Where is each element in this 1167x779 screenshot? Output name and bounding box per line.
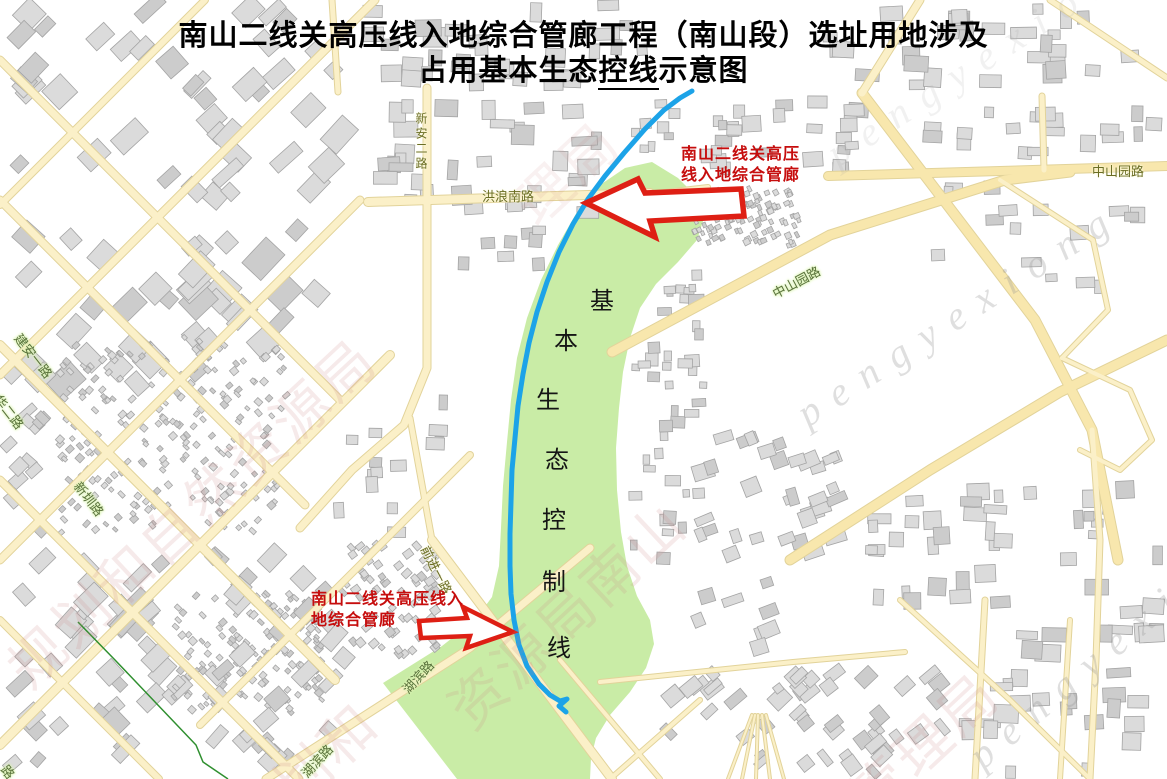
callout-label-top: 南山二线关高压 线入地综合管廊 xyxy=(681,144,800,186)
callout-bottom-line2: 地综合管廊 xyxy=(311,610,464,631)
eco-line-label-char: 基 xyxy=(590,281,614,316)
road-label-zhongshanyuan: 中山园路 xyxy=(1092,161,1144,180)
title-line2-suffix: 示意图 xyxy=(659,55,749,87)
map-canvas: pengyexiong pengyexiong pengyexiong 规划和自… xyxy=(0,0,1167,779)
callout-top-line1: 南山二线关高压 xyxy=(681,144,800,165)
callout-label-bottom: 南山二线关高压线入 地综合管廊 xyxy=(311,589,464,631)
map-title-line2: 占用基本生态控线示意图 xyxy=(0,47,1167,89)
callout-top-line2: 线入地综合管廊 xyxy=(681,165,800,186)
road-label-xinan2: 新安二路 xyxy=(413,112,430,172)
title-line2-prefix: 占用基本生态 xyxy=(418,55,598,87)
title-line2-underlined: 控线 xyxy=(598,55,658,90)
map-image xyxy=(0,0,1167,779)
eco-line-label-char: 生 xyxy=(536,380,560,415)
eco-line-label-char: 制 xyxy=(542,562,566,597)
eco-line-label-char: 控 xyxy=(542,500,566,535)
road-label-honglangnan: 洪浪南路 xyxy=(482,186,534,205)
eco-line-label-char: 线 xyxy=(547,628,571,663)
eco-line-label-char: 态 xyxy=(545,440,569,475)
eco-line-label-char: 本 xyxy=(554,321,578,356)
callout-bottom-line1: 南山二线关高压线入 xyxy=(311,589,464,610)
